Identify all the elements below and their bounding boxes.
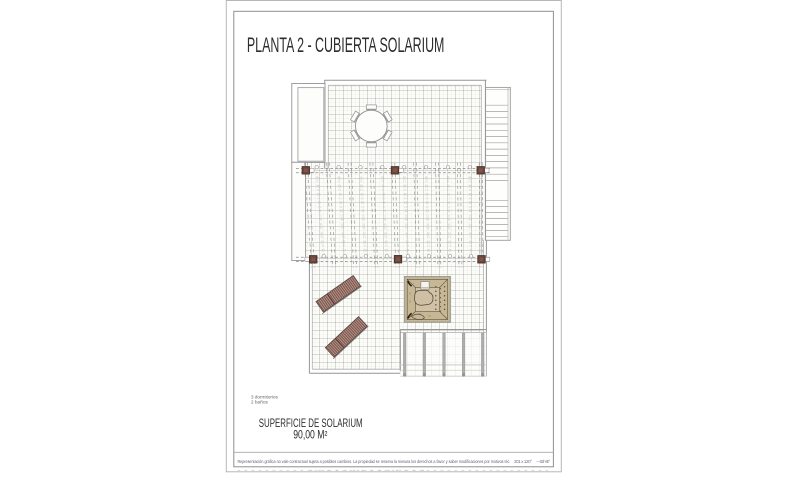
svg-text:― 118 h · 90°: ― 118 h · 90° <box>536 459 550 464</box>
svg-text:Representación gráfica no vale: Representación gráfica no vale contractu… <box>238 459 511 464</box>
svg-text:SUPERFICIE DE SOLARIUM: SUPERFICIE DE SOLARIUM <box>259 416 363 430</box>
svg-text:90,00 M²: 90,00 M² <box>293 429 327 441</box>
svg-text:2 baños: 2 baños <box>251 399 269 405</box>
svg-text:PLANTA 2 - CUBIERTA SOLARIUM: PLANTA 2 - CUBIERTA SOLARIUM <box>247 33 445 57</box>
svg-text:201 x 120°: 201 x 120° <box>514 459 532 464</box>
